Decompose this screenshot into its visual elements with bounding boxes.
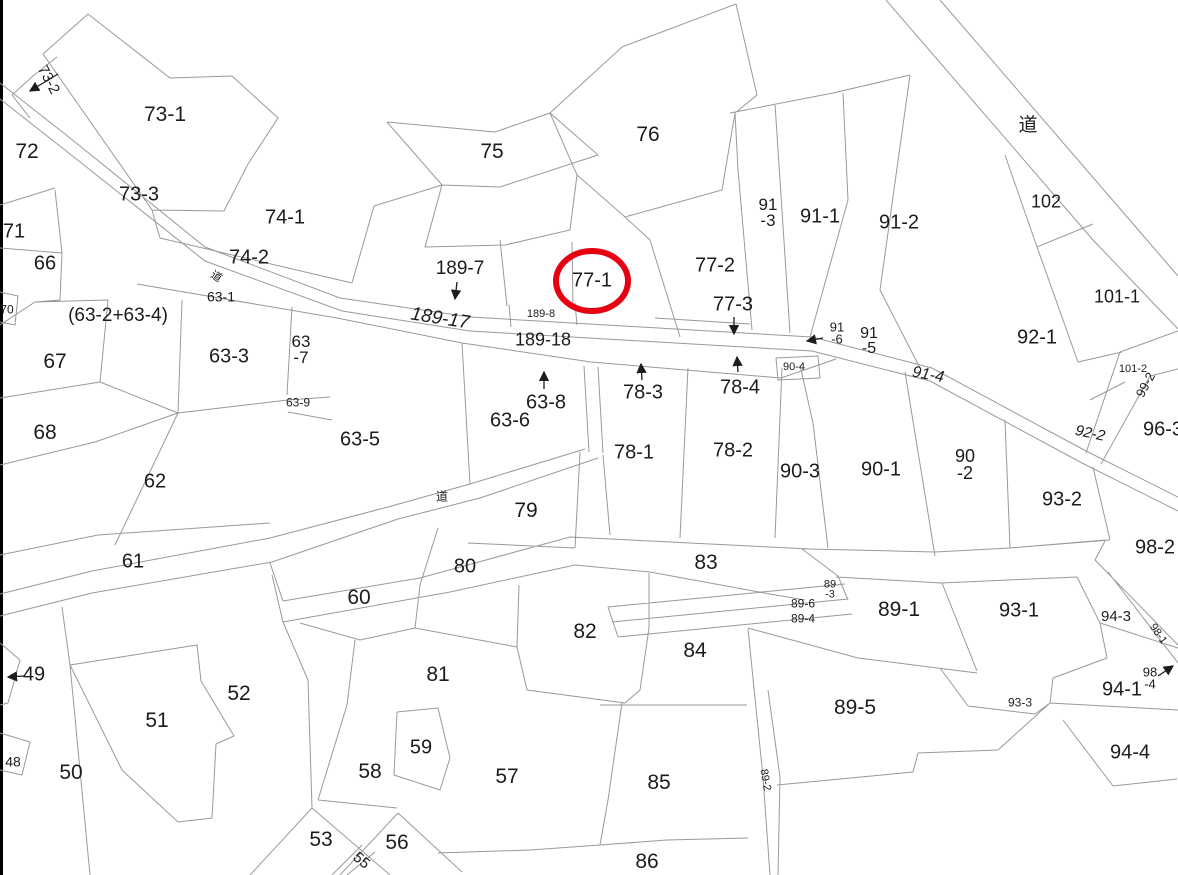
leader-arrow-73-2 <box>30 74 58 91</box>
leader-arrow-49 <box>8 676 24 677</box>
parcel-boundaries <box>0 0 1178 875</box>
highlight-circle-77-1 <box>556 251 628 311</box>
parcel-lines <box>0 4 1178 875</box>
leader-arrow-78-4 <box>737 357 738 372</box>
cadastral-map[interactable]: 73-27273-173-3716670(63-2+63-4)676862614… <box>0 0 1178 875</box>
leader-arrow-98-4 <box>1158 666 1173 676</box>
leader-arrow-189-7 <box>455 282 457 299</box>
